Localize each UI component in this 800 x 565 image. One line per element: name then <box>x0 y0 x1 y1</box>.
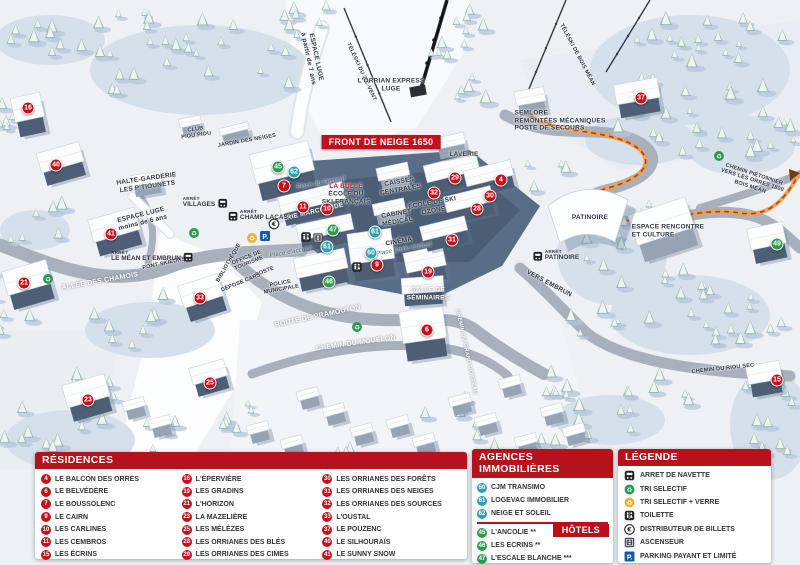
map-label: ROUTE DE PRAMOUTON <box>274 304 361 330</box>
legend-entry: 62NEIGE ET SOLEIL <box>477 507 608 520</box>
map-marker-46: 46 <box>323 276 336 289</box>
map-marker-6: 6 <box>421 324 434 337</box>
bus-stop-label: ARRÊTPATINOIRE <box>533 250 579 262</box>
legend-entry: 37LE POUZENC <box>322 523 461 536</box>
map-label: ESPACE LUGE à partir de 7 ans <box>299 30 325 85</box>
marker-badge: 9 <box>41 512 51 522</box>
legend-entry: 4LE BALCON DES ORRES <box>41 473 180 486</box>
marker-badge: 37 <box>322 525 332 535</box>
map-label: ESPACE RENCONTRE ET CULTURE <box>632 223 704 238</box>
legend-entry: TOILETTE <box>624 509 765 522</box>
legend-entry: 10LES CARLINES <box>41 523 180 536</box>
recycle-icon: ♻ <box>189 228 200 239</box>
map-marker-16: 16 <box>22 102 35 115</box>
map-marker-60: 60 <box>365 247 378 260</box>
marker-badge: 21 <box>182 499 192 509</box>
bus-stop-label: ARRÊTVILLAGES <box>183 197 228 209</box>
map-label: CHEMIN DU RIOU SEC <box>691 362 754 375</box>
parking-icon: P. <box>624 551 635 562</box>
map-marker-41: 41 <box>105 228 118 241</box>
map-marker-32: 32 <box>428 187 441 200</box>
bus-icon <box>183 252 193 262</box>
svg-text:♻: ♻ <box>249 234 255 242</box>
map-marker-21: 21 <box>18 277 31 290</box>
marker-badge: 60 <box>477 483 487 493</box>
map-label: POLICE MUNICIPALE <box>262 278 300 297</box>
map-marker-61: 61 <box>369 226 382 239</box>
marker-badge: 25 <box>182 525 192 535</box>
marker-badge: 7 <box>41 499 51 509</box>
map-label: CHEMIN DU GRAND CORREAU <box>454 309 478 395</box>
legend-entry: 15LES ÉCRINS <box>41 549 180 562</box>
marker-badge: 23 <box>182 512 192 522</box>
resort-map: ESPACE LUGE à partir de 7 ansTÉLÉSKI DU … <box>0 0 800 565</box>
map-marker-47: 47 <box>327 224 340 237</box>
svg-text:♻: ♻ <box>354 323 360 331</box>
residences-title: RÉSIDENCES <box>35 452 467 469</box>
legend-entry: 11LES CEMBROS <box>41 536 180 549</box>
legend-entry: 9LE CAIRN <box>41 511 180 524</box>
legend-entry: 41LE SUNNY SNOW <box>322 549 461 562</box>
toilet-icon <box>301 232 312 243</box>
marker-badge: 47 <box>477 554 487 564</box>
legend-entry: 23LA MAZELIÈRE <box>182 511 321 524</box>
map-marker-29: 29 <box>449 172 462 185</box>
legend-panel: LÉGENDE ARRET DE NAVETTE♻TRI SELECTIF♻TR… <box>618 449 771 563</box>
map-label: JARDIN DES NEIGES <box>217 133 276 150</box>
legend-list: ARRET DE NAVETTE♻TRI SELECTIF♻TRI SELECT… <box>618 466 771 565</box>
svg-text:♻: ♻ <box>191 229 197 237</box>
marker-badge: 11 <box>41 537 51 547</box>
euro-icon: € <box>624 524 635 535</box>
marker-badge: 28 <box>182 537 192 547</box>
map-marker-10: 10 <box>321 203 334 216</box>
legend-entry: 29LES ORRIANES DES CIMES <box>182 549 321 562</box>
recycle-icon: ♻ <box>43 274 54 285</box>
agencies-title: AGENCES IMMOBILIÈRES <box>472 449 613 478</box>
toilet-icon <box>352 262 363 273</box>
front-de-neige-banner: FRONT DE NEIGE 1650 <box>322 135 441 149</box>
residences-panel: RÉSIDENCES 4LE BALCON DES ORRES6LE BELVÉ… <box>35 452 467 559</box>
marker-badge: 40 <box>322 537 332 547</box>
map-label: TÉLÉSKI DU ZIC-VENT <box>345 42 378 102</box>
map-marker-15: 15 <box>771 374 784 387</box>
recycle-icon: ♻ <box>624 484 635 495</box>
marker-badge: 46 <box>477 541 487 551</box>
map-marker-30: 30 <box>484 190 497 203</box>
legend-title: LÉGENDE <box>618 449 771 466</box>
bus-icon <box>624 470 635 481</box>
legend-entry: 19LES GRADINS <box>182 486 321 499</box>
map-label: CABINET MÉDICAL <box>380 208 413 228</box>
recycle-glass-icon: ♻ <box>247 233 258 244</box>
marker-badge: 4 <box>41 474 51 484</box>
map-label: L'ORRIAN EXPRESS LUGE <box>358 77 425 92</box>
map-marker-62: 62 <box>288 166 301 179</box>
svg-text:€: € <box>626 525 632 533</box>
legend-entry: 30LES ORRIANES DES FORÊTS <box>322 473 461 486</box>
map-marker-9: 9 <box>371 259 384 272</box>
svg-text:P.: P. <box>627 554 633 561</box>
map-marker-61: 61 <box>321 241 334 254</box>
map-label: DÉPOSE CARS <box>220 272 262 294</box>
map-marker-40: 40 <box>50 159 63 172</box>
bus-icon <box>228 211 238 221</box>
map-marker-33: 33 <box>194 292 207 305</box>
legend-entry: 32LES ORRIANES DES SOURCES <box>322 498 461 511</box>
map-marker-45: 45 <box>272 161 285 174</box>
map-label: TÉLÉSKI DE BOIS MÉAN <box>558 23 596 87</box>
agencies-list: 60CJM TRANSIMO61LOGEVAC IMMOBILIER62NEIG… <box>472 478 613 565</box>
map-label: CAISSES CENTRALES <box>378 175 422 197</box>
map-label: CLUB PIOU PIOU <box>180 124 212 141</box>
legend-entry: ASCENSEUR <box>624 536 765 549</box>
svg-text:€: € <box>271 220 277 228</box>
marker-badge: 41 <box>322 550 332 560</box>
legend-entry: 25LES MÉLÈZES <box>182 523 321 536</box>
legend-entry: 60CJM TRANSIMO <box>477 481 608 494</box>
map-label: SEMLORE REMONTÉES MÉCANIQUES POSTE DE SE… <box>514 110 605 133</box>
svg-text:♻: ♻ <box>627 485 633 493</box>
agencies-hotels-panel: AGENCES IMMOBILIÈRES 60CJM TRANSIMO61LOG… <box>472 449 613 563</box>
hotels-title: HÔTELS <box>553 524 609 537</box>
legend-entry: ♻TRI SELECTIF + VERRE <box>624 496 765 509</box>
map-marker-11: 11 <box>297 201 310 214</box>
svg-text:P.: P. <box>262 234 268 241</box>
legend-entry: 7LE BOUSSOLENC <box>41 498 180 511</box>
map-marker-25: 25 <box>204 377 217 390</box>
euro-icon: € <box>269 219 280 230</box>
toilet-icon <box>624 510 635 521</box>
legend-entry: €DISTRIBUTEUR DE BILLETS <box>624 523 765 536</box>
marker-badge: 15 <box>41 550 51 560</box>
map-label: VERS EMBRUN <box>525 269 573 299</box>
legend-entry: 47L'ESCALE BLANCHE *** <box>477 552 608 565</box>
marker-badge: 10 <box>41 525 51 535</box>
marker-badge: 33 <box>322 512 332 522</box>
marker-badge: 6 <box>41 487 51 497</box>
legend-entry: 6LE BELVÉDÈRE <box>41 486 180 499</box>
marker-badge: 30 <box>322 474 332 484</box>
map-marker-7: 7 <box>278 180 291 193</box>
bus-stop-label: ARRÊTLE MÉAN ET EMBRUN <box>111 251 193 263</box>
map-label: ALLÉE DES CHAMOIS <box>61 271 139 293</box>
legend-entry: 16L'ÉPERVIÈRE <box>182 473 321 486</box>
marker-badge: 62 <box>477 509 487 519</box>
legend-entry: 31LES ORRIANES DES NEIGES <box>322 486 461 499</box>
legend-entry: 21L'HORIZON <box>182 498 321 511</box>
legend-entry: ♻TRI SELECTIF <box>624 482 765 495</box>
map-marker-28: 28 <box>471 203 484 216</box>
bus-icon <box>217 198 227 208</box>
map-label: LAVERIE <box>449 151 478 159</box>
legend-entry: 45L'ANCOLIE **HÔTELS <box>477 526 608 539</box>
legend-entry: 61LOGEVAC IMMOBILIER <box>477 494 608 507</box>
map-marker-37: 37 <box>635 92 648 105</box>
map-label: CHEMIN DU MOUFLON <box>316 334 397 353</box>
map-label: SALLE DE SÉMINAIRES <box>407 286 449 301</box>
svg-text:♻: ♻ <box>45 275 51 283</box>
marker-badge: 61 <box>477 496 487 506</box>
recycle-icon: ♻ <box>714 151 725 162</box>
map-label: PATINOIRE <box>572 214 608 222</box>
recycle-glass-icon: ♻ <box>624 497 635 508</box>
recycle-icon: ♻ <box>352 322 363 333</box>
parking-icon: P. <box>260 231 271 242</box>
legend-entry: 46LES ECRINS ** <box>477 539 608 552</box>
elevator-icon <box>624 537 635 548</box>
map-label: ESPACE LUGE moins de 6 ans <box>116 206 168 233</box>
bus-icon <box>533 251 543 261</box>
svg-text:♻: ♻ <box>627 499 633 507</box>
map-marker-31: 31 <box>446 234 459 247</box>
legend-entry: 40LE SILHOURAÏS <box>322 536 461 549</box>
legend-entry: P.PARKING PAYANT ET LIMITÉ <box>624 549 765 562</box>
map-marker-4: 4 <box>495 174 508 187</box>
map-marker-49: 49 <box>771 238 784 251</box>
map-label: HALTE-GARDERIE LES P'TIOUNETS <box>116 171 178 195</box>
marker-badge: 45 <box>477 528 487 538</box>
marker-badge: 32 <box>322 499 332 509</box>
map-label: Place d'accueil <box>269 246 312 260</box>
legend-entry: 33L'OUSTAL <box>322 511 461 524</box>
marker-badge: 16 <box>182 474 192 484</box>
map-marker-23: 23 <box>82 394 95 407</box>
map-marker-19: 19 <box>422 266 435 279</box>
map-label: CHEMIN PIÉTONNIER VERS LES ORRES 1800 BO… <box>718 162 787 201</box>
marker-badge: 29 <box>182 550 192 560</box>
marker-badge: 19 <box>182 487 192 497</box>
marker-badge: 31 <box>322 487 332 497</box>
legend-entry: ARRET DE NAVETTE <box>624 469 765 482</box>
legend-entry: 28LES ORRIANES DES BLÉS <box>182 536 321 549</box>
svg-text:♻: ♻ <box>716 152 722 160</box>
residences-list: 4LE BALCON DES ORRES6LE BELVÉDÈRE7LE BOU… <box>35 469 467 563</box>
